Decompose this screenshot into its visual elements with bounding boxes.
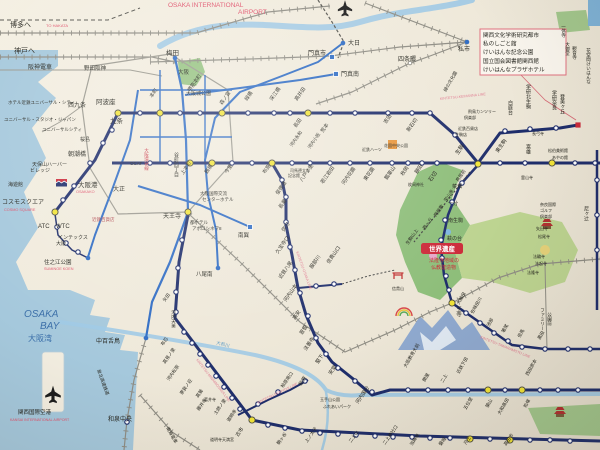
station-marker xyxy=(448,436,452,440)
terminus-marker xyxy=(248,225,253,230)
transfer-station-marker xyxy=(305,110,311,116)
map-label: 服部川 xyxy=(308,254,322,270)
map-label: ビレッジ xyxy=(30,167,50,174)
map-label: 但馬 xyxy=(516,327,527,339)
map-label: 八尾南 xyxy=(196,270,213,278)
map-label: ホテル近鉄ユニバーサル・シティ xyxy=(8,99,75,106)
map-label: 谷町四丁目 xyxy=(173,151,179,178)
map-label: OSAKA xyxy=(24,309,59,320)
jr-dashed-top xyxy=(0,8,140,20)
station-marker xyxy=(439,238,443,242)
station-marker xyxy=(428,436,432,440)
station-marker xyxy=(447,288,451,292)
station-marker xyxy=(138,111,142,115)
map-label: 葛井寺 xyxy=(204,396,216,402)
station-marker xyxy=(466,388,470,392)
kansai-airport-island xyxy=(42,352,64,412)
station-marker xyxy=(406,161,410,165)
top-right-sea-bar xyxy=(588,0,600,26)
map-label: 大阪 xyxy=(178,68,190,76)
map-label: 和泉中央 xyxy=(108,415,132,423)
map-label: ユニバーサル・スタジオ・ジャパン xyxy=(4,116,76,123)
map-label: 門真市 xyxy=(308,49,326,57)
map-label: 関西国際空港 xyxy=(18,408,52,416)
station-marker xyxy=(595,178,599,182)
station-marker xyxy=(410,111,414,115)
info-box-line: けいはんなプラザホテル xyxy=(483,66,545,73)
terminus-marker xyxy=(575,122,580,127)
station-marker xyxy=(190,341,194,345)
station-marker xyxy=(328,161,332,165)
station-marker xyxy=(336,432,340,436)
shigi-cable xyxy=(342,270,395,284)
map-label: 道明寺天満宮 xyxy=(210,436,234,442)
map-label: 大正 xyxy=(113,185,125,193)
map-label: 富雄 xyxy=(525,143,531,155)
station-marker xyxy=(168,161,172,165)
transfer-station-marker xyxy=(485,387,491,393)
map-label: 高安 xyxy=(291,309,302,321)
map-label: 公園前 xyxy=(547,312,553,327)
station-marker xyxy=(216,266,221,271)
station-marker xyxy=(72,184,76,188)
map-label: 奈良国際 xyxy=(540,201,556,207)
map-label: 中百舌鳥 xyxy=(96,337,120,345)
map-label: 大御堂 xyxy=(565,41,571,56)
map-label: 松尾寺 xyxy=(538,233,550,239)
rainbow-arc xyxy=(400,312,408,316)
station-marker xyxy=(595,213,599,217)
airplane-glyph xyxy=(338,0,352,16)
map-label: 河内小阪 xyxy=(306,131,322,150)
map-label: 法隆寺 xyxy=(527,269,539,275)
map-label: 柏原 xyxy=(297,375,308,387)
station-marker xyxy=(198,352,202,356)
map-label: 大阪港 xyxy=(78,180,98,189)
flag-icon xyxy=(56,179,67,187)
transfer-station-marker xyxy=(519,387,525,393)
map-label: 大阪湾 xyxy=(28,333,52,343)
terminus-marker xyxy=(330,55,335,60)
station-marker xyxy=(300,429,304,433)
map-label: 五位堂 xyxy=(462,395,474,410)
station-marker xyxy=(293,268,297,272)
map-label: 大阪国際交流 xyxy=(200,190,227,197)
map-label: OCAT xyxy=(130,161,142,166)
map-label: 河内花園 xyxy=(340,166,357,186)
map-label: 大和高田 xyxy=(496,396,511,416)
map-label: KINTETSU-DOMYOJI LINE xyxy=(257,382,299,405)
map-label: 倶楽部 xyxy=(540,213,552,219)
map-label: 私市 xyxy=(458,45,470,53)
station-marker xyxy=(428,111,432,115)
transfer-station-marker xyxy=(157,110,163,116)
map-label: 当麻寺 xyxy=(408,432,422,447)
map-label: 天保山ハーバー xyxy=(32,161,67,168)
map-label: 河内天美 xyxy=(171,309,177,330)
station-marker xyxy=(506,339,510,343)
transfer-station-marker xyxy=(549,160,555,166)
station-marker xyxy=(288,245,292,249)
station-marker xyxy=(406,388,410,392)
map-label: 信貴山 xyxy=(392,285,404,291)
map-label: 大日 xyxy=(348,39,360,47)
map-label: 南巽 xyxy=(238,231,250,239)
map-label: 若江岩田 xyxy=(319,165,336,185)
map-label: WTC xyxy=(56,224,70,230)
terminus-marker xyxy=(334,72,339,77)
temple-base xyxy=(556,414,564,417)
map-label: 玉手山公園 xyxy=(320,396,340,402)
station-marker xyxy=(464,311,468,315)
map-label: 近鉄ハーツ xyxy=(362,146,382,152)
station-marker xyxy=(520,345,524,349)
map-label: 佐味田川 xyxy=(469,296,484,315)
station-marker xyxy=(283,426,287,430)
station-marker xyxy=(576,388,580,392)
transfer-station-marker xyxy=(115,110,121,116)
transfer-station-marker xyxy=(249,417,255,423)
map-label: 緑の文化園 xyxy=(442,70,460,93)
map-label: ファミリー xyxy=(540,308,546,331)
map-label: 上ノ太子 xyxy=(303,425,319,444)
map-label: 記念館 xyxy=(288,172,300,178)
map-label: 博多へ xyxy=(10,20,31,29)
map-label: OSAKA INTERNATIONAL xyxy=(168,2,244,9)
map-label: KANSAI INTERNATIONAL AIRPORT xyxy=(10,418,70,422)
map-label: ゴルフ xyxy=(540,207,552,213)
map-label: 法隆寺地域の xyxy=(429,257,459,264)
station-marker xyxy=(498,161,502,165)
map-label: 駒ヶ谷 xyxy=(275,431,289,446)
osaka-bay-south xyxy=(0,290,138,450)
map-label: 信貴山口 xyxy=(325,245,342,265)
station-marker xyxy=(272,111,276,115)
map-label: 河内山本 xyxy=(282,283,299,303)
map-label: 新石切 xyxy=(405,117,419,133)
map-label: アポロシネマ8 xyxy=(192,225,222,232)
station-marker xyxy=(538,388,542,392)
map-label: 高見ノ里 xyxy=(161,346,177,365)
station-marker xyxy=(588,347,592,351)
map-label: 南生駒 xyxy=(448,217,463,224)
map-label: 飛鳥カンツリー xyxy=(468,108,496,114)
map-label: 白庭台 xyxy=(507,99,513,116)
map-label: 王寺 xyxy=(455,306,462,318)
map-label: 近鉄八尾 xyxy=(277,260,294,280)
map-label: 菜畑 xyxy=(452,183,462,190)
info-box-line: けいはんな記念公園 xyxy=(483,48,534,56)
map-label: 朝潮橋 xyxy=(68,150,86,158)
info-box-line: 関西文化学術研究都市 xyxy=(483,31,539,39)
map-label: 仏教建造物 xyxy=(431,264,456,271)
map-label: 花園中央公園 xyxy=(384,142,408,148)
map-label: 倶楽部 xyxy=(464,114,476,120)
map-label: コスモスクエア xyxy=(2,199,44,206)
station-marker xyxy=(568,439,572,443)
torii-icon xyxy=(393,273,404,279)
station-marker xyxy=(353,379,357,383)
map-label: 法起寺 xyxy=(535,260,547,266)
station-marker xyxy=(110,128,114,132)
station-marker xyxy=(298,291,302,295)
station-marker xyxy=(88,161,92,165)
station-marker xyxy=(348,161,352,165)
station-marker xyxy=(182,330,186,334)
map-label: 枚岡神社 xyxy=(408,181,424,187)
map-label: センターホテル xyxy=(202,196,234,203)
station-marker xyxy=(446,388,450,392)
station-marker xyxy=(341,41,346,46)
station-marker xyxy=(595,248,599,252)
station-marker xyxy=(444,274,448,278)
map-label: 学研奈良 xyxy=(551,89,557,111)
map-label: 大阪 xyxy=(56,240,66,247)
station-marker xyxy=(478,321,482,325)
map-label: 住之江公園 xyxy=(44,258,72,266)
map-label: 近鉄百貨店 xyxy=(92,216,115,223)
station-marker xyxy=(174,290,178,294)
map-label: COSMO SQUARE xyxy=(4,208,36,212)
station-marker xyxy=(556,388,560,392)
map-label: 観音寺 xyxy=(572,45,578,60)
map-label: 九条 xyxy=(110,116,124,125)
map-label: OSAKAKO xyxy=(76,190,95,194)
map-label: 阪神電車 xyxy=(28,63,52,71)
map-label: 松伯美術館 xyxy=(548,147,568,153)
map-label: 萩の台 xyxy=(447,235,462,242)
station-marker xyxy=(593,161,597,165)
station-marker xyxy=(76,250,80,254)
map-label: ユニバーサルシティ xyxy=(42,127,82,133)
transfer-station-marker xyxy=(52,209,58,215)
map-label: 一休寺 xyxy=(561,24,567,38)
station-marker xyxy=(246,111,250,115)
map-label: 古市 xyxy=(234,426,245,438)
map-label: TO HAKATA xyxy=(46,23,68,28)
map-label: 長弓寺 xyxy=(532,130,544,136)
station-marker xyxy=(353,111,357,115)
map-label: 松塚 xyxy=(522,397,533,409)
map-label: 八戸ノ里 xyxy=(299,163,315,183)
map-label: 尼ヶ辻 xyxy=(583,206,589,222)
map-label: 近鉄下田 xyxy=(455,355,470,375)
map-label: KINTETSU-KEIHANNA LINE xyxy=(440,92,487,101)
station-marker xyxy=(503,388,507,392)
map-label: 枚岡 xyxy=(399,165,410,177)
map-label: 近鉄百貨店 xyxy=(458,125,478,131)
station-marker xyxy=(488,437,492,441)
map-label: 恩智 xyxy=(298,324,309,336)
station-marker xyxy=(370,390,374,394)
map-label: 神戸へ xyxy=(14,46,35,55)
nankai-line xyxy=(140,395,200,450)
map-label: 河内松原 xyxy=(165,363,181,382)
map-label: 二上 xyxy=(439,372,449,383)
kashihara-green xyxy=(528,404,600,436)
yamato-hills xyxy=(455,212,578,293)
station-marker xyxy=(426,388,430,392)
torii-glyph xyxy=(393,273,404,279)
map-label: 学研北生駒 xyxy=(525,83,531,110)
station-marker xyxy=(198,111,202,115)
map-label: 河内永和 xyxy=(288,129,304,148)
station-marker xyxy=(492,331,496,335)
info-box-line: 私のしごと館 xyxy=(483,40,517,48)
station-marker xyxy=(543,347,547,351)
station-marker xyxy=(324,352,328,356)
map-label: 四条畷 xyxy=(398,55,416,63)
station-marker xyxy=(288,111,292,115)
map-label: 西田原本 xyxy=(524,357,539,377)
transit-map-svg: 関西文化学術研究都市私のしごと館けいはんな記念公園国立国会図書館関西館けいはんな… xyxy=(0,0,600,450)
map-label: 関屋 xyxy=(422,372,432,383)
transfer-station-marker xyxy=(475,161,481,167)
nankai-line-ticks xyxy=(140,395,200,450)
map-label: あやの館 xyxy=(552,154,568,160)
map-label: 花空間けいはんな xyxy=(586,47,592,85)
map-label: 黒田 xyxy=(537,330,547,341)
station-marker xyxy=(566,347,570,351)
station-marker xyxy=(554,126,558,130)
map-label: 門真南 xyxy=(341,70,359,78)
map-label: 長田 xyxy=(293,118,304,130)
yotsubashi-subway xyxy=(88,90,138,257)
station-marker xyxy=(176,266,180,270)
map-label: 瓢箪山 xyxy=(383,165,397,181)
map-label: 矢田寺 xyxy=(536,225,548,231)
station-marker xyxy=(573,161,577,165)
station-marker xyxy=(290,161,294,165)
map-label: 天王寺 xyxy=(163,212,181,220)
station-marker xyxy=(318,431,322,435)
station-marker xyxy=(503,129,507,133)
station-marker xyxy=(314,284,318,288)
map-label: 桜島 xyxy=(80,136,90,143)
station-marker xyxy=(528,438,532,442)
map-label: 本町 xyxy=(148,87,159,99)
station-marker xyxy=(523,161,527,165)
map-label: 法輪寺 xyxy=(533,253,545,259)
station-marker xyxy=(465,40,470,45)
station-marker xyxy=(250,161,254,165)
map-label: 吉田 xyxy=(382,113,393,125)
rainbow-icon xyxy=(396,308,412,316)
map-label: 荒本 xyxy=(319,122,330,134)
station-marker xyxy=(548,438,552,442)
map-label: 野田阪神 xyxy=(84,64,107,72)
station-marker xyxy=(373,434,377,438)
transfer-station-marker xyxy=(185,209,191,215)
station-marker xyxy=(206,363,210,367)
station-marker xyxy=(443,218,447,222)
map-label: 高井田 xyxy=(293,86,307,102)
station-marker xyxy=(180,238,184,242)
station-marker xyxy=(328,111,332,115)
map-label: SUMINOE KOEN xyxy=(44,267,74,271)
map-label: 緑橋 xyxy=(243,90,254,102)
map-label: BAY xyxy=(40,321,61,332)
station-marker xyxy=(306,314,310,318)
station-marker xyxy=(435,161,439,165)
station-marker xyxy=(332,282,336,286)
map-label: 登美ヶ丘 xyxy=(559,93,565,114)
map-label: AIRPORT xyxy=(238,9,267,16)
transfer-station-marker xyxy=(219,110,225,116)
map-label: 梅田 xyxy=(166,48,179,57)
map-label: 霊山寺 xyxy=(521,174,533,180)
station-marker xyxy=(390,161,394,165)
map-label: 海遊館 xyxy=(8,181,23,188)
map-label: 道明寺 xyxy=(225,408,239,423)
station-marker xyxy=(178,111,182,115)
map-label: 一分 xyxy=(448,200,458,207)
map-label: 築山 xyxy=(484,397,495,409)
station-marker xyxy=(284,195,288,199)
map-label: 箸尾 xyxy=(500,322,511,334)
info-box-line: 国立国会図書館関西館 xyxy=(483,57,539,65)
map-label: 阿波座 xyxy=(96,97,116,106)
station-marker xyxy=(266,423,270,427)
map-label: 東花園 xyxy=(362,166,376,182)
station-marker xyxy=(144,336,149,341)
map-label: 弥刀 xyxy=(280,221,291,233)
station-marker xyxy=(86,256,91,261)
map-label: ATC xyxy=(38,224,50,230)
map-label: 生駒店 xyxy=(455,131,467,137)
world-heritage-badge-label: 世界遺産 xyxy=(429,244,456,253)
station-marker xyxy=(368,161,372,165)
station-marker xyxy=(101,141,105,145)
station-marker xyxy=(238,407,242,411)
station-marker xyxy=(61,198,65,202)
airplane-icon xyxy=(338,0,352,16)
map-label: 恵我ノ荘 xyxy=(178,377,194,396)
map-label: ふれあいパーク xyxy=(323,403,351,409)
map-photo: 関西文化学術研究都市私のしごと館けいはんな記念公園国立国会図書館関西館けいはんな… xyxy=(0,0,600,450)
map-label: 池部 xyxy=(485,316,496,328)
map-label: 矢田 xyxy=(161,291,172,303)
map-label: 大阪環状線 xyxy=(144,147,150,171)
map-label: 深江橋 xyxy=(268,86,282,102)
